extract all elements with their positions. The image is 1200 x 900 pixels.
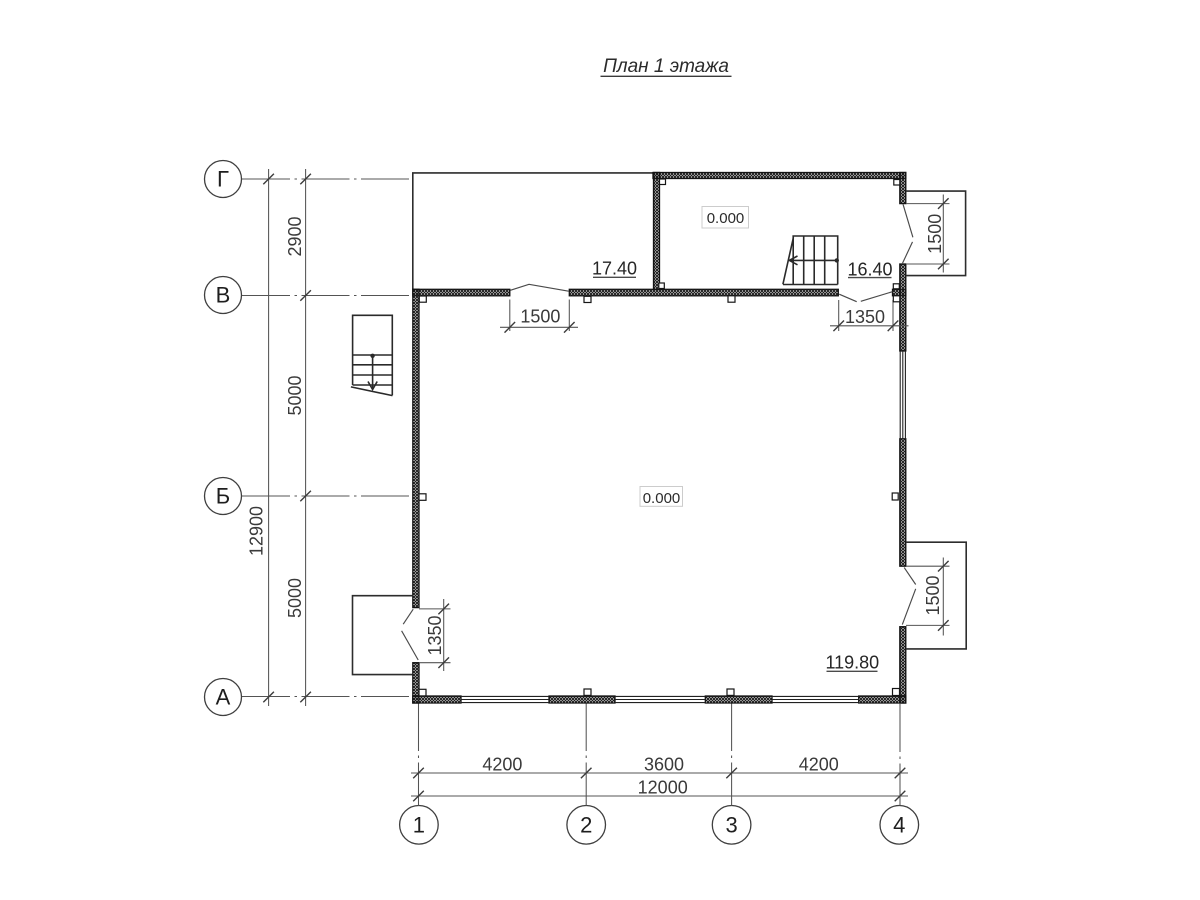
svg-text:Б: Б bbox=[216, 484, 230, 509]
svg-text:План 1 этажа: План 1 этажа bbox=[603, 56, 729, 77]
svg-text:16.40: 16.40 bbox=[847, 260, 892, 280]
svg-text:1500: 1500 bbox=[925, 214, 945, 254]
svg-text:119.80: 119.80 bbox=[825, 653, 879, 673]
svg-text:А: А bbox=[216, 685, 231, 710]
svg-text:1500: 1500 bbox=[923, 575, 943, 615]
svg-text:1350: 1350 bbox=[425, 615, 445, 655]
svg-text:12900: 12900 bbox=[247, 506, 267, 556]
svg-text:12000: 12000 bbox=[638, 778, 688, 798]
svg-text:3: 3 bbox=[725, 812, 737, 837]
svg-text:4: 4 bbox=[893, 812, 905, 837]
svg-text:17.40: 17.40 bbox=[592, 259, 637, 279]
svg-text:2: 2 bbox=[580, 812, 592, 837]
svg-text:0.000: 0.000 bbox=[643, 490, 681, 507]
svg-text:5000: 5000 bbox=[285, 578, 305, 618]
svg-text:2900: 2900 bbox=[285, 216, 305, 256]
svg-text:3600: 3600 bbox=[644, 755, 684, 775]
svg-text:5000: 5000 bbox=[285, 375, 305, 415]
svg-text:1: 1 bbox=[413, 812, 425, 837]
svg-text:1350: 1350 bbox=[845, 307, 885, 327]
svg-text:1500: 1500 bbox=[520, 307, 560, 327]
svg-text:0.000: 0.000 bbox=[707, 210, 745, 227]
svg-text:Г: Г bbox=[217, 167, 229, 192]
svg-text:4200: 4200 bbox=[482, 755, 522, 775]
svg-text:4200: 4200 bbox=[799, 755, 839, 775]
svg-text:В: В bbox=[216, 283, 231, 308]
